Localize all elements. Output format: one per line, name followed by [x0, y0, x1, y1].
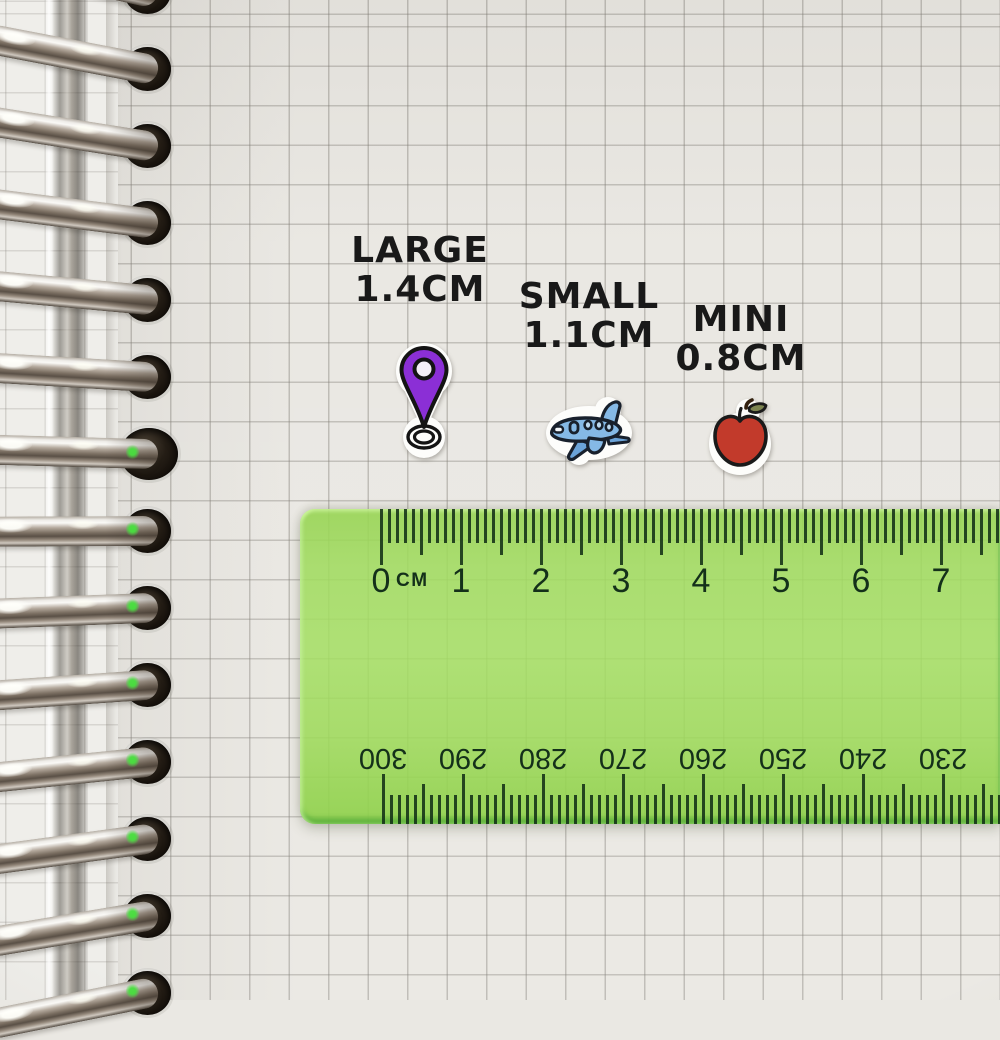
cm-tick	[636, 509, 639, 543]
mm-tick	[558, 795, 561, 824]
mm-tick	[622, 774, 625, 824]
mm-tick	[990, 795, 993, 824]
mm-tick	[590, 795, 593, 824]
cm-tick	[860, 509, 863, 565]
cm-tick	[476, 509, 479, 543]
cm-tick	[924, 509, 927, 543]
mm-tick	[542, 774, 545, 824]
mm-tick	[686, 795, 689, 824]
mm-tick	[470, 795, 473, 824]
mm-tick	[758, 795, 761, 824]
spiral-binding	[0, 0, 190, 1000]
cm-number: 4	[692, 562, 711, 601]
cm-number: 0	[372, 562, 391, 601]
cm-tick	[684, 509, 687, 543]
mm-tick	[566, 795, 569, 824]
cm-tick	[620, 509, 623, 565]
size-label-name: MINI	[675, 301, 806, 340]
cm-tick	[468, 509, 471, 543]
mm-tick	[910, 795, 913, 824]
cm-tick	[732, 509, 735, 543]
mm-tick	[430, 795, 433, 824]
cm-tick	[900, 509, 903, 555]
mm-tick	[398, 795, 401, 824]
apple-sticker	[706, 398, 776, 476]
cm-number: 6	[852, 562, 871, 601]
mm-tick	[846, 795, 849, 824]
green-reflection	[126, 983, 139, 999]
mm-tick	[782, 774, 785, 824]
cm-tick	[892, 509, 895, 543]
cm-tick	[484, 509, 487, 543]
mm-tick	[830, 795, 833, 824]
mm-number: 250	[759, 741, 807, 774]
cm-unit-label: CM	[396, 570, 429, 592]
mm-tick	[390, 795, 393, 824]
cm-tick	[756, 509, 759, 543]
mm-tick	[718, 795, 721, 824]
mm-tick	[486, 795, 489, 824]
mm-tick	[382, 774, 385, 824]
mm-tick	[502, 784, 505, 824]
cm-tick	[676, 509, 679, 543]
cm-tick	[932, 509, 935, 543]
mm-tick	[766, 795, 769, 824]
mm-number: 240	[839, 741, 887, 774]
notebook-photo: { "labels": [ { "name": "LARGE", "size":…	[0, 0, 1000, 1000]
mm-tick	[606, 795, 609, 824]
mm-tick	[950, 795, 953, 824]
cm-tick	[580, 509, 583, 555]
cm-tick	[764, 509, 767, 543]
mm-tick	[918, 795, 921, 824]
mm-tick	[710, 795, 713, 824]
cm-tick	[556, 509, 559, 543]
cm-tick	[596, 509, 599, 543]
ruler: 01234567 CM 300290280270260250240230	[300, 509, 1000, 824]
mm-tick	[422, 784, 425, 824]
mm-tick	[886, 795, 889, 824]
green-reflection	[126, 444, 139, 460]
mm-tick	[662, 784, 665, 824]
mm-tick	[406, 795, 409, 824]
mm-number: 300	[359, 741, 407, 774]
cm-tick	[788, 509, 791, 543]
size-label-value: 1.1CM	[519, 317, 660, 356]
cm-tick	[404, 509, 407, 543]
mm-tick	[902, 784, 905, 824]
mm-tick	[966, 795, 969, 824]
cm-number: 5	[772, 562, 791, 601]
cm-tick	[972, 509, 975, 543]
mm-tick	[774, 795, 777, 824]
cm-tick	[708, 509, 711, 543]
mm-tick	[574, 795, 577, 824]
cm-tick	[780, 509, 783, 565]
mm-tick	[702, 774, 705, 824]
mm-tick	[934, 795, 937, 824]
mm-number: 230	[919, 741, 967, 774]
apple-icon	[715, 400, 766, 465]
cm-tick	[628, 509, 631, 543]
cm-tick	[908, 509, 911, 543]
cm-tick	[508, 509, 511, 543]
cm-tick	[604, 509, 607, 543]
mm-tick	[598, 795, 601, 824]
cm-tick	[884, 509, 887, 543]
mm-tick	[694, 795, 697, 824]
mm-tick	[798, 795, 801, 824]
mm-tick	[614, 795, 617, 824]
mm-tick	[550, 795, 553, 824]
mm-tick	[894, 795, 897, 824]
cm-tick	[500, 509, 503, 555]
cm-tick	[916, 509, 919, 543]
cm-tick	[436, 509, 439, 543]
mm-tick	[814, 795, 817, 824]
cm-tick	[740, 509, 743, 555]
cm-tick	[948, 509, 951, 543]
mm-tick	[870, 795, 873, 824]
size-label-value: 0.8CM	[675, 340, 806, 379]
cm-number: 7	[932, 562, 951, 601]
mm-tick	[518, 795, 521, 824]
mm-tick	[734, 795, 737, 824]
mm-tick	[654, 795, 657, 824]
cm-tick	[588, 509, 591, 543]
mm-tick	[822, 784, 825, 824]
cm-tick	[940, 509, 943, 565]
cm-tick	[412, 509, 415, 543]
cm-tick	[852, 509, 855, 543]
mm-tick	[854, 795, 857, 824]
green-reflection	[126, 675, 139, 691]
cm-tick	[660, 509, 663, 555]
cm-tick	[820, 509, 823, 555]
mm-tick	[806, 795, 809, 824]
cm-tick	[532, 509, 535, 543]
cm-tick	[716, 509, 719, 543]
cm-tick	[396, 509, 399, 543]
cm-tick	[796, 509, 799, 543]
airplane-sticker	[545, 397, 635, 465]
green-reflection	[126, 752, 139, 768]
mm-tick	[878, 795, 881, 824]
mm-tick	[838, 795, 841, 824]
cm-tick	[444, 509, 447, 543]
mm-tick	[974, 795, 977, 824]
mm-number: 290	[439, 741, 487, 774]
green-reflection	[126, 906, 139, 922]
cm-tick	[524, 509, 527, 543]
green-reflection	[126, 598, 139, 614]
cm-tick	[644, 509, 647, 543]
cm-tick	[460, 509, 463, 565]
mm-tick	[510, 795, 513, 824]
cm-tick	[420, 509, 423, 555]
mm-tick	[670, 795, 673, 824]
location-pin-sticker	[395, 341, 453, 459]
cm-tick	[844, 509, 847, 543]
cm-tick	[956, 509, 959, 543]
cm-tick	[652, 509, 655, 543]
cm-tick	[548, 509, 551, 543]
cm-tick	[564, 509, 567, 543]
mm-tick	[526, 795, 529, 824]
green-reflection	[126, 521, 139, 537]
mm-tick	[726, 795, 729, 824]
mm-tick	[438, 795, 441, 824]
cm-tick	[428, 509, 431, 543]
size-label-name: SMALL	[519, 278, 660, 317]
cm-tick	[964, 509, 967, 543]
cm-tick	[452, 509, 455, 543]
mm-tick	[790, 795, 793, 824]
cm-tick	[572, 509, 575, 543]
mm-tick	[742, 784, 745, 824]
cm-tick	[996, 509, 999, 543]
mm-tick	[862, 774, 865, 824]
cm-tick	[828, 509, 831, 543]
mm-tick	[678, 795, 681, 824]
mm-tick	[534, 795, 537, 824]
cm-tick	[980, 509, 983, 555]
cm-tick	[668, 509, 671, 543]
green-reflection	[126, 829, 139, 845]
mm-tick	[414, 795, 417, 824]
cm-tick	[812, 509, 815, 543]
cm-tick	[700, 509, 703, 565]
mm-tick	[630, 795, 633, 824]
cm-number: 1	[452, 562, 471, 601]
mm-tick	[582, 784, 585, 824]
size-label-mini: MINI 0.8CM	[675, 301, 806, 379]
mm-tick	[926, 795, 929, 824]
cm-number: 2	[532, 562, 551, 601]
cm-tick	[836, 509, 839, 543]
cm-tick	[724, 509, 727, 543]
cm-tick	[876, 509, 879, 543]
cm-tick	[868, 509, 871, 543]
mm-tick	[982, 784, 985, 824]
mm-tick	[454, 795, 457, 824]
mm-tick	[942, 774, 945, 824]
mm-tick	[638, 795, 641, 824]
cm-tick	[516, 509, 519, 543]
size-label-name: LARGE	[351, 232, 489, 271]
mm-tick	[446, 795, 449, 824]
cm-tick	[804, 509, 807, 543]
mm-number: 270	[599, 741, 647, 774]
size-label-large: LARGE 1.4CM	[351, 232, 489, 310]
cm-tick	[988, 509, 991, 543]
cm-tick	[612, 509, 615, 543]
cm-tick	[388, 509, 391, 543]
mm-tick	[646, 795, 649, 824]
size-label-value: 1.4CM	[351, 271, 489, 310]
mm-number: 280	[519, 741, 567, 774]
mm-number: 260	[679, 741, 727, 774]
cm-tick	[748, 509, 751, 543]
cm-tick	[692, 509, 695, 543]
mm-tick	[478, 795, 481, 824]
cm-tick	[380, 509, 383, 565]
mm-tick	[494, 795, 497, 824]
cm-tick	[772, 509, 775, 543]
cm-tick	[492, 509, 495, 543]
cm-tick	[540, 509, 543, 565]
cm-number: 3	[612, 562, 631, 601]
mm-tick	[958, 795, 961, 824]
mm-tick	[750, 795, 753, 824]
mm-tick	[462, 774, 465, 824]
size-label-small: SMALL 1.1CM	[519, 278, 660, 356]
